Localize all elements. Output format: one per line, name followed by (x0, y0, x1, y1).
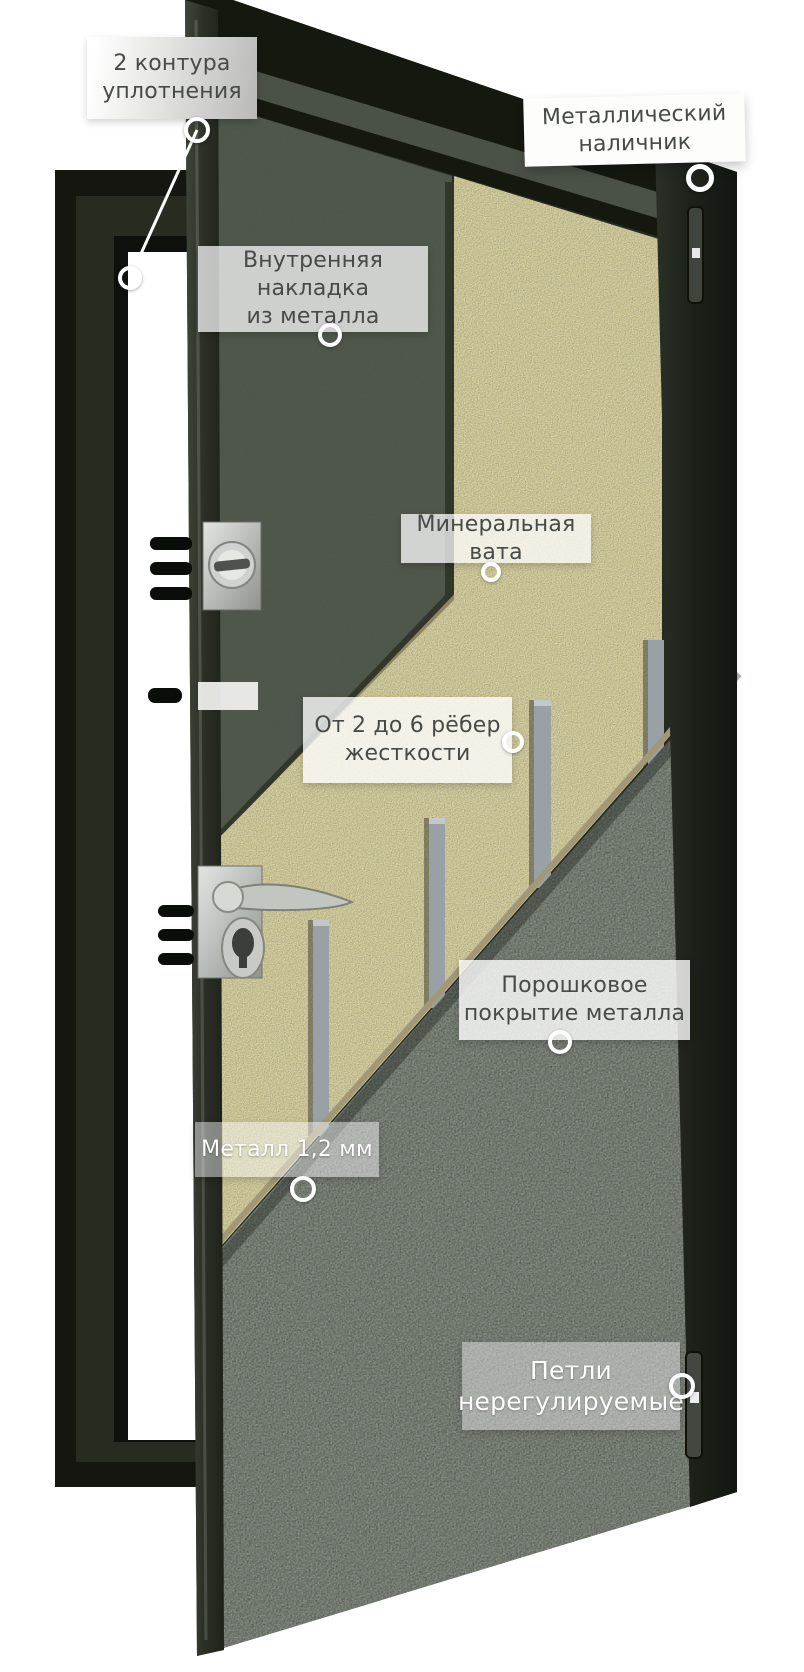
marker-seal-door (184, 117, 210, 143)
label-metal-thickness: Металл 1,2 мм (195, 1122, 379, 1177)
label-line: 2 контура (113, 50, 230, 78)
label-line: уплотнения (102, 78, 242, 106)
label-line: Внутренняя накладка (198, 247, 428, 302)
label-inner-overlay: Внутренняя накладка из металла (198, 246, 428, 332)
upper-lock (203, 522, 261, 610)
hinge-bottom (686, 1352, 702, 1458)
label-line: нерегулируемые (458, 1386, 684, 1418)
label-stiffening-ribs: От 2 до 6 рёбер жесткости (303, 697, 512, 783)
marker-seal-frame (118, 266, 142, 290)
deadbolts-lower (158, 905, 194, 965)
label-powder-coating: Порошковое покрытие металла (459, 960, 690, 1040)
marker-mineral-wool (481, 562, 501, 582)
label-line: Металл 1,2 мм (201, 1136, 373, 1164)
marker-metal-thickness (290, 1176, 316, 1202)
marker-metal-casing (686, 164, 714, 192)
marker-powder-coating (548, 1030, 572, 1054)
stiffening-rib (529, 700, 551, 888)
latch-faceplate (198, 682, 258, 710)
deadbolts-upper (150, 537, 192, 600)
label-mineral-wool: Минеральная вата (401, 514, 591, 563)
label-line: От 2 до 6 рёбер (314, 712, 500, 740)
marker-stiffening-ribs (502, 731, 524, 753)
label-hinges: Петли нерегулируемые (462, 1342, 680, 1430)
marker-inner-overlay (318, 323, 342, 347)
marker-hinges (669, 1373, 695, 1399)
label-line: покрытие металла (464, 1000, 685, 1028)
label-metal-casing: Металлический наличник (523, 93, 746, 166)
label-line: из металла (246, 303, 379, 331)
label-line: Металлический (542, 100, 727, 132)
label-seal-contours: 2 контура уплотнения (87, 37, 257, 119)
latch-bolt (148, 688, 182, 703)
stiffening-rib (424, 818, 445, 1008)
label-line: наличник (578, 129, 691, 159)
stiffening-rib (308, 920, 329, 1136)
label-line: Петли (530, 1355, 612, 1387)
label-line: жесткости (344, 740, 470, 768)
label-line: Минеральная вата (401, 511, 591, 566)
label-line: Порошковое (501, 972, 647, 1000)
hinge-top (688, 207, 703, 303)
door-construction-figure: 2 контура уплотнения Металлический налич… (0, 0, 804, 1672)
